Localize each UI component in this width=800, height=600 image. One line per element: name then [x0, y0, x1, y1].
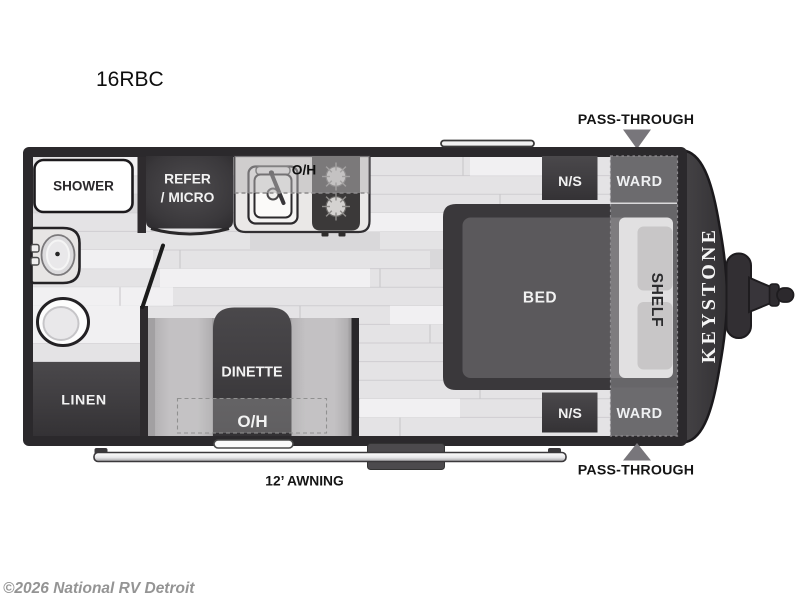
svg-text:SHOWER: SHOWER: [53, 179, 114, 194]
svg-text:N/S: N/S: [558, 406, 582, 422]
svg-text:/ MICRO: / MICRO: [161, 190, 215, 205]
svg-text:KEYSTONE: KEYSTONE: [698, 227, 720, 363]
svg-text:O/H: O/H: [237, 412, 267, 431]
svg-text:©2026 National RV Detroit: ©2026 National RV Detroit: [3, 580, 195, 597]
svg-text:SHELF: SHELF: [648, 273, 665, 328]
svg-text:O/H: O/H: [292, 163, 317, 178]
svg-text:BED: BED: [523, 290, 557, 307]
svg-text:PASS-THROUGH: PASS-THROUGH: [578, 112, 694, 128]
svg-text:16RBC: 16RBC: [96, 68, 164, 91]
svg-text:WARD: WARD: [617, 406, 663, 422]
svg-text:DINETTE: DINETTE: [221, 365, 282, 381]
svg-text:WARD: WARD: [617, 174, 663, 190]
svg-text:PASS-THROUGH: PASS-THROUGH: [578, 463, 694, 479]
svg-text:12’ AWNING: 12’ AWNING: [265, 474, 343, 489]
svg-text:N/S: N/S: [558, 174, 582, 190]
svg-text:LINEN: LINEN: [61, 393, 107, 409]
svg-text:REFER: REFER: [164, 172, 211, 187]
